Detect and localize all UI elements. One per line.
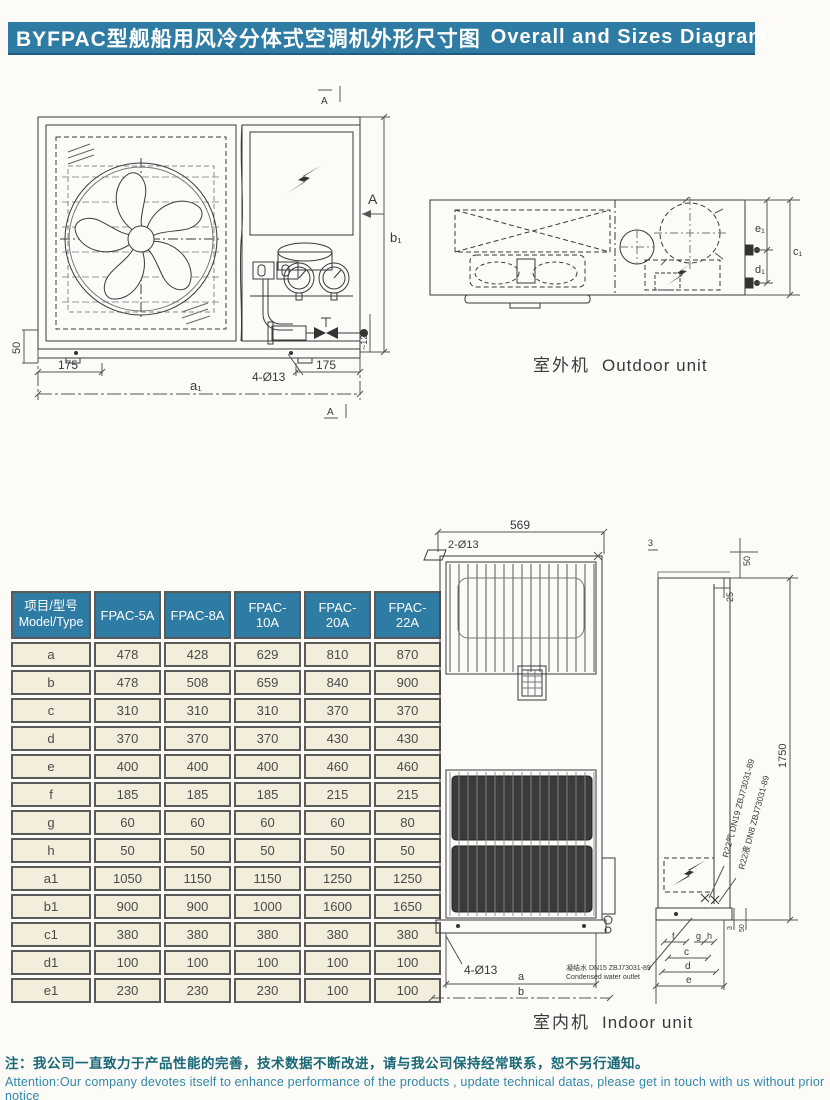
table-row: a110501150115012501250 bbox=[11, 866, 441, 891]
value-cell: 840 bbox=[304, 670, 371, 695]
dim-holes-label: 4-Ø13 bbox=[252, 370, 286, 384]
value-cell: 185 bbox=[164, 782, 231, 807]
value-cell: 310 bbox=[234, 698, 301, 723]
value-cell: 50 bbox=[304, 838, 371, 863]
value-cell: 50 bbox=[164, 838, 231, 863]
table-header-zh: 项目/型号 bbox=[15, 599, 87, 615]
lightning-bolt-icon bbox=[672, 860, 706, 886]
pressure-gauges-icon bbox=[284, 263, 349, 300]
dim-h-label: h bbox=[707, 931, 712, 941]
value-cell: 508 bbox=[164, 670, 231, 695]
dim-175-left-label: 175 bbox=[58, 358, 78, 372]
value-cell: 1050 bbox=[94, 866, 161, 891]
value-cell: 1150 bbox=[164, 866, 231, 891]
dim-d-label: d bbox=[685, 961, 691, 972]
dim-a1-label: a₁ bbox=[190, 378, 202, 393]
dim-bottom-3-label: 3 bbox=[727, 926, 734, 930]
indoor-unit-label-en: Indoor unit bbox=[602, 1013, 693, 1032]
param-cell: a bbox=[11, 642, 91, 667]
footnote-en: Attention:Our company devotes itself to … bbox=[5, 1075, 829, 1100]
outdoor-unit-label-zh: 室外机 bbox=[533, 356, 590, 375]
indoor-unit-label-zh: 室内机 bbox=[533, 1013, 590, 1032]
value-cell: 100 bbox=[94, 950, 161, 975]
value-cell: 629 bbox=[234, 642, 301, 667]
param-cell: g bbox=[11, 810, 91, 835]
dim-a-label: a bbox=[518, 971, 525, 983]
holes-top-label: 2-Ø13 bbox=[448, 539, 479, 551]
table-row: a478428629810870 bbox=[11, 642, 441, 667]
dim-g-label: g bbox=[696, 931, 701, 941]
value-cell: 100 bbox=[234, 950, 301, 975]
dim-50-top-label: 50 bbox=[742, 556, 752, 566]
param-cell: d1 bbox=[11, 950, 91, 975]
value-cell: 230 bbox=[164, 978, 231, 1003]
dim-b-label: b bbox=[518, 986, 524, 998]
param-cell: b1 bbox=[11, 894, 91, 919]
value-cell: 370 bbox=[94, 726, 161, 751]
value-cell: 50 bbox=[234, 838, 301, 863]
dim-e-label: e bbox=[686, 975, 692, 986]
param-cell: c1 bbox=[11, 922, 91, 947]
value-cell: 230 bbox=[234, 978, 301, 1003]
table-header-row: 项目/型号 Model/Type FPAC-5A FPAC-8A FPAC-10… bbox=[11, 591, 441, 639]
value-cell: 50 bbox=[94, 838, 161, 863]
table-row: d1100100100100100 bbox=[11, 950, 441, 975]
dim-d1-label: d₁ bbox=[755, 264, 765, 276]
value-cell: 370 bbox=[164, 726, 231, 751]
table-row: b1900900100016001650 bbox=[11, 894, 441, 919]
title-banner: BYFPAC型舰船用风冷分体式空调机外形尺寸图 Overall and Size… bbox=[8, 22, 755, 55]
value-cell: 478 bbox=[94, 642, 161, 667]
drain-label-zh: 凝结水 DN15 ZBJ73031-89 bbox=[566, 963, 651, 972]
value-cell: 428 bbox=[164, 642, 231, 667]
section-marker-top: A bbox=[321, 96, 328, 107]
value-cell: 100 bbox=[304, 950, 371, 975]
value-cell: 659 bbox=[234, 670, 301, 695]
value-cell: 60 bbox=[234, 810, 301, 835]
value-cell: 100 bbox=[164, 950, 231, 975]
value-cell: 185 bbox=[94, 782, 161, 807]
table-row: h5050505050 bbox=[11, 838, 441, 863]
value-cell: 460 bbox=[304, 754, 371, 779]
table-header-param: 项目/型号 Model/Type bbox=[11, 591, 91, 639]
value-cell: 380 bbox=[94, 922, 161, 947]
dim-b1-label: b₁ bbox=[390, 230, 402, 245]
dim-3-label: 3 bbox=[648, 538, 653, 548]
value-cell: 400 bbox=[94, 754, 161, 779]
table-header-model-3: FPAC-10A bbox=[234, 591, 301, 639]
table-row: g6060606080 bbox=[11, 810, 441, 835]
table-row: c1380380380380380 bbox=[11, 922, 441, 947]
value-cell: 900 bbox=[94, 894, 161, 919]
param-cell: f bbox=[11, 782, 91, 807]
section-marker-bottom: A bbox=[327, 407, 334, 418]
value-cell: 370 bbox=[304, 698, 371, 723]
page-title-zh: BYFPAC型舰船用风冷分体式空调机外形尺寸图 bbox=[16, 23, 481, 53]
table-header-model-4: FPAC-20A bbox=[304, 591, 371, 639]
dim-25-label: 25 bbox=[725, 592, 735, 602]
footnote-zh: 注：我公司一直致力于产品性能的完善，技术数据不断改进，请与我公司保持经常联系，恕… bbox=[5, 1052, 829, 1072]
value-cell: 310 bbox=[164, 698, 231, 723]
param-cell: e bbox=[11, 754, 91, 779]
indoor-unit-label: 室内机Indoor unit bbox=[533, 1008, 693, 1033]
value-cell: 60 bbox=[94, 810, 161, 835]
dim-c-label: c bbox=[684, 947, 689, 958]
dim-1750-label: 1750 bbox=[777, 744, 789, 768]
outdoor-unit-label: 室外机Outdoor unit bbox=[533, 351, 708, 376]
outdoor-unit-front-drawing: A A A a₁ b₁ 175 175 4-Ø13 50 ~120 bbox=[10, 82, 415, 427]
value-cell: 380 bbox=[164, 922, 231, 947]
holes-bottom-label: 4-Ø13 bbox=[464, 963, 498, 977]
dim-f-label: f bbox=[672, 931, 675, 941]
value-cell: 1600 bbox=[304, 894, 371, 919]
dim-c1-label: c₁ bbox=[793, 246, 803, 258]
value-cell: 60 bbox=[164, 810, 231, 835]
table-row: c310310310370370 bbox=[11, 698, 441, 723]
outdoor-unit-label-en: Outdoor unit bbox=[602, 356, 708, 375]
table-row: f185185185215215 bbox=[11, 782, 441, 807]
table-header-model-1: FPAC-5A bbox=[94, 591, 161, 639]
value-cell: 310 bbox=[94, 698, 161, 723]
dim-120-label: ~120 bbox=[359, 330, 369, 350]
dim-e1-label: e₁ bbox=[755, 223, 765, 235]
value-cell: 60 bbox=[304, 810, 371, 835]
value-cell: 370 bbox=[234, 726, 301, 751]
spec-sheet-page: BYFPAC型舰船用风冷分体式空调机外形尺寸图 Overall and Size… bbox=[0, 0, 830, 1100]
value-cell: 380 bbox=[234, 922, 301, 947]
value-cell: 810 bbox=[304, 642, 371, 667]
outdoor-unit-top-drawing: e₁ d₁ c₁ bbox=[415, 185, 830, 350]
param-cell: a1 bbox=[11, 866, 91, 891]
table-row: e1230230230100100 bbox=[11, 978, 441, 1003]
dim-50-label: 50 bbox=[11, 342, 23, 354]
indoor-unit-drawing: 569 2-Ø13 4-Ø13 a b 凝结水 DN15 ZBJ73031-89… bbox=[418, 518, 830, 1010]
value-cell: 100 bbox=[304, 978, 371, 1003]
value-cell: 215 bbox=[304, 782, 371, 807]
value-cell: 430 bbox=[304, 726, 371, 751]
param-cell: h bbox=[11, 838, 91, 863]
value-cell: 185 bbox=[234, 782, 301, 807]
value-cell: 380 bbox=[304, 922, 371, 947]
value-cell: 900 bbox=[164, 894, 231, 919]
value-cell: 400 bbox=[164, 754, 231, 779]
lightning-bolt-icon bbox=[286, 165, 322, 194]
dim-bottom-50-label: 50 bbox=[739, 924, 746, 932]
value-cell: 1150 bbox=[234, 866, 301, 891]
value-cell: 1000 bbox=[234, 894, 301, 919]
dim-175-right-label: 175 bbox=[316, 358, 336, 372]
section-marker-right: A bbox=[368, 191, 378, 207]
value-cell: 478 bbox=[94, 670, 161, 695]
param-cell: b bbox=[11, 670, 91, 695]
value-cell: 230 bbox=[94, 978, 161, 1003]
param-cell: c bbox=[11, 698, 91, 723]
value-cell: 400 bbox=[234, 754, 301, 779]
table-row: d370370370430430 bbox=[11, 726, 441, 751]
footnote: 注：我公司一直致力于产品性能的完善，技术数据不断改进，请与我公司保持经常联系，恕… bbox=[5, 1052, 829, 1100]
table-row: b478508659840900 bbox=[11, 670, 441, 695]
table-row: e400400400460460 bbox=[11, 754, 441, 779]
param-cell: d bbox=[11, 726, 91, 751]
value-cell: 1250 bbox=[304, 866, 371, 891]
drain-label-en: Condensed water outlet bbox=[566, 974, 640, 981]
dim-569-label: 569 bbox=[510, 518, 530, 532]
page-title-en: Overall and Sizes Diagram bbox=[491, 26, 767, 49]
dimension-table: 项目/型号 Model/Type FPAC-5A FPAC-8A FPAC-10… bbox=[8, 588, 444, 1006]
table-header-en: Model/Type bbox=[15, 615, 87, 631]
param-cell: e1 bbox=[11, 978, 91, 1003]
table-header-model-2: FPAC-8A bbox=[164, 591, 231, 639]
